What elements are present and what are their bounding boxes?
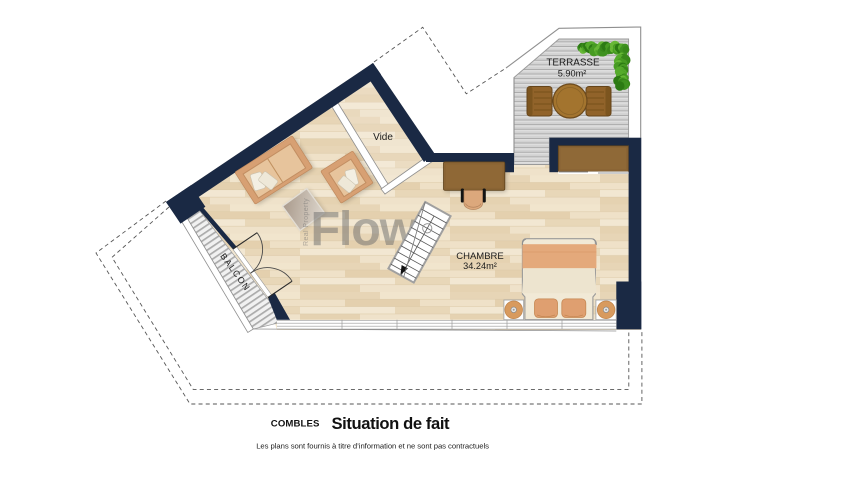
svg-text:5.90m²: 5.90m²	[558, 69, 587, 79]
svg-text:Vide: Vide	[373, 132, 393, 143]
svg-text:Situation de fait: Situation de fait	[332, 414, 451, 433]
svg-text:COMBLES: COMBLES	[271, 419, 320, 430]
svg-text:Les plans sont fournis à titre: Les plans sont fournis à titre d’informa…	[256, 442, 489, 451]
svg-text:Real Property: Real Property	[303, 198, 310, 246]
svg-text:TERRASSE: TERRASSE	[546, 58, 600, 69]
svg-text:34.24m²: 34.24m²	[463, 261, 497, 271]
